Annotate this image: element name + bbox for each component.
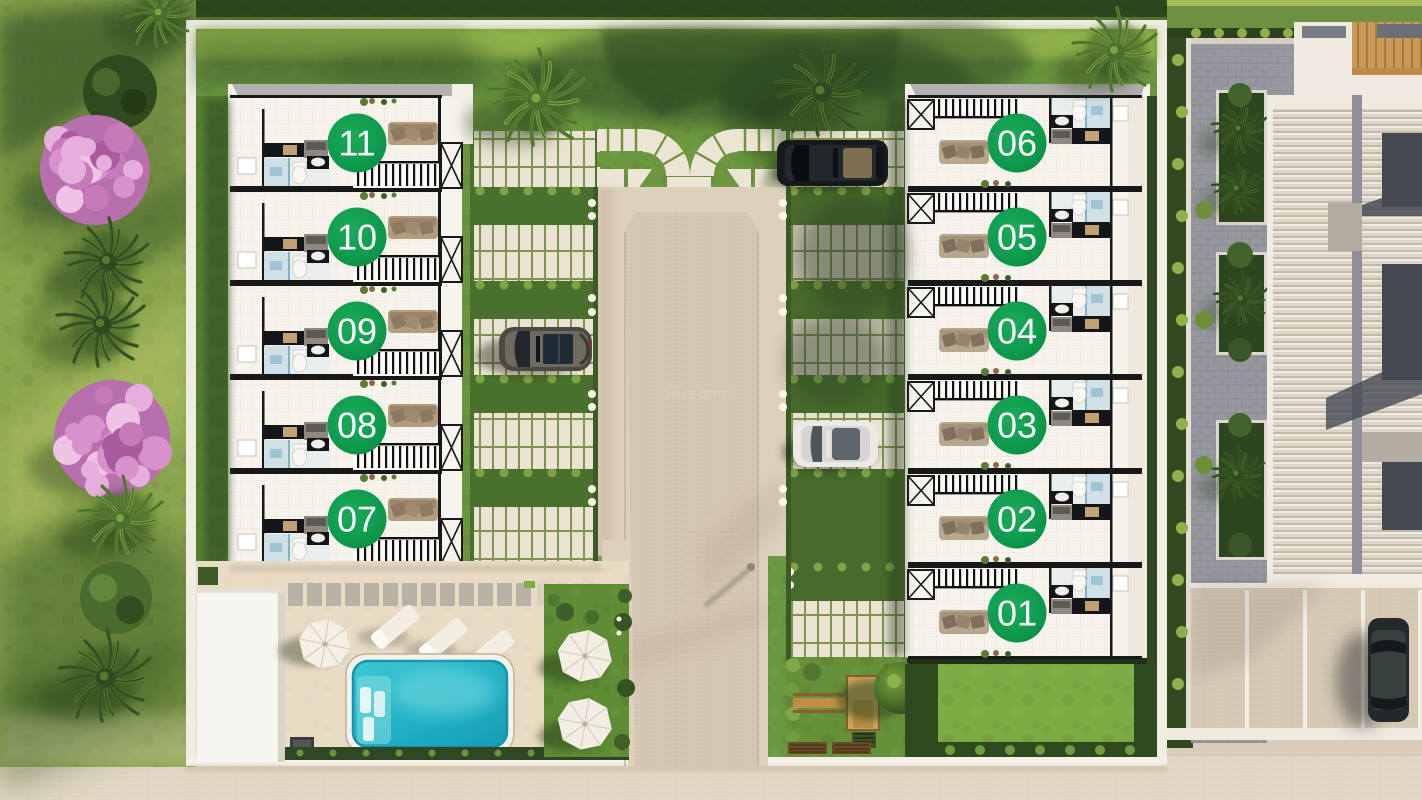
svg-text:11: 11 <box>338 123 375 164</box>
svg-text:BPLAN CENTER: BPLAN CENTER <box>665 390 735 400</box>
svg-text:01: 01 <box>997 593 1037 634</box>
svg-text:05: 05 <box>997 217 1037 258</box>
svg-text:06: 06 <box>997 123 1037 164</box>
svg-text:07: 07 <box>337 499 377 540</box>
svg-text:03: 03 <box>997 405 1037 446</box>
svg-text:08: 08 <box>337 405 377 446</box>
svg-text:04: 04 <box>997 311 1037 352</box>
svg-text:09: 09 <box>337 311 377 352</box>
svg-text:02: 02 <box>997 499 1037 540</box>
svg-text:10: 10 <box>337 217 377 258</box>
